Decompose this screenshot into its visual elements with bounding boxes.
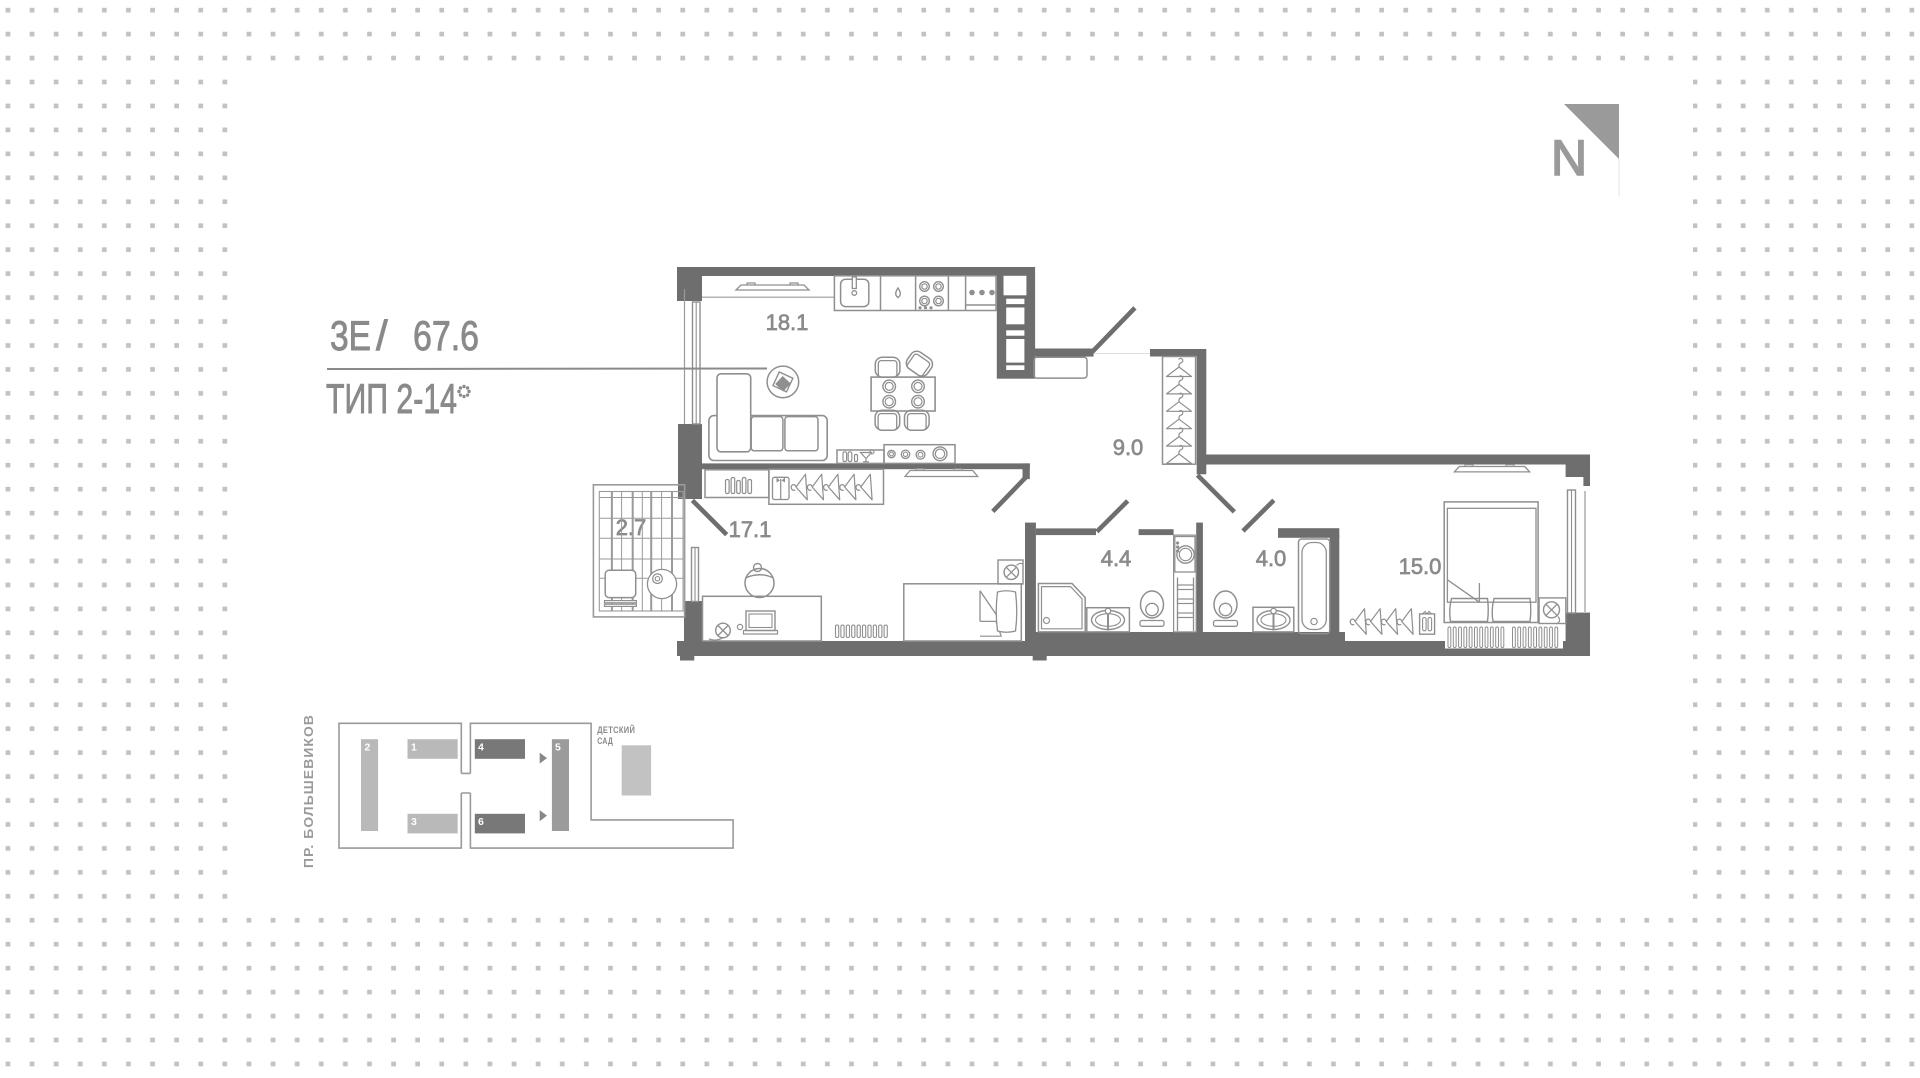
svg-text:ПР. БОЛЬШЕВИКОВ: ПР. БОЛЬШЕВИКОВ bbox=[302, 714, 316, 868]
svg-text:18.1: 18.1 bbox=[766, 310, 809, 335]
svg-text:1: 1 bbox=[411, 742, 417, 754]
svg-text:9.0: 9.0 bbox=[1113, 435, 1144, 460]
svg-text:2.7: 2.7 bbox=[616, 515, 647, 540]
svg-text:4.0: 4.0 bbox=[1256, 546, 1287, 571]
svg-text:3: 3 bbox=[411, 816, 417, 828]
svg-text:ДЕТСКИЙ: ДЕТСКИЙ bbox=[597, 724, 635, 736]
svg-text:15.0: 15.0 bbox=[1399, 554, 1442, 579]
svg-text:ТИП 2-14: ТИП 2-14 bbox=[326, 375, 457, 422]
svg-text:4: 4 bbox=[478, 742, 484, 754]
svg-text:17.1: 17.1 bbox=[729, 517, 772, 542]
svg-text:6: 6 bbox=[478, 816, 484, 828]
svg-text:САД: САД bbox=[597, 736, 613, 747]
svg-text:5: 5 bbox=[555, 742, 561, 754]
svg-text:N: N bbox=[1551, 130, 1587, 186]
svg-text:2: 2 bbox=[365, 742, 371, 754]
svg-text:4.4: 4.4 bbox=[1101, 546, 1132, 571]
